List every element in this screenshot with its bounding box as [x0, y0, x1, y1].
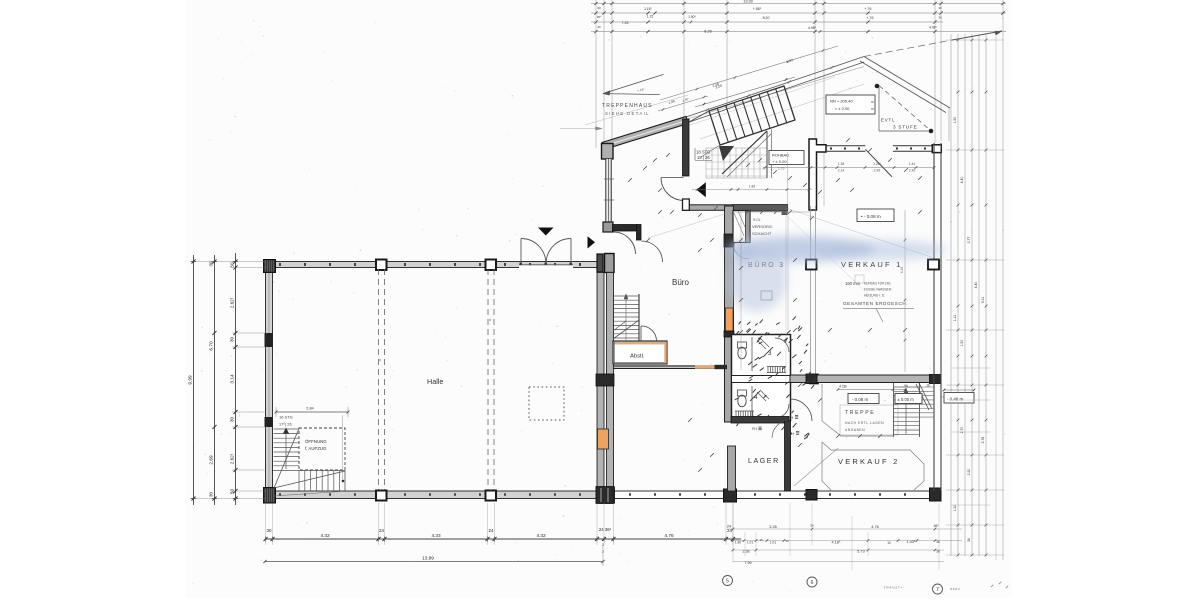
- svg-text:2.62¹: 2.62¹: [230, 297, 235, 308]
- svg-text:FH: FH: [752, 427, 757, 431]
- svg-text:36: 36: [936, 540, 940, 544]
- svg-text:• - 0.08 m: • - 0.08 m: [861, 214, 881, 219]
- svg-text:NACH ERTL.LAGEN: NACH ERTL.LAGEN: [845, 421, 884, 425]
- svg-text:2.78: 2.78: [981, 437, 985, 444]
- svg-text:1.90: 1.90: [735, 541, 741, 545]
- svg-text:+.76: +.76: [865, 7, 872, 11]
- svg-text:HEIZUNG I. D.: HEIZUNG I. D.: [864, 294, 885, 298]
- svg-text:30: 30: [597, 6, 601, 10]
- svg-text:8 6 8 2: 8 6 8 2: [950, 587, 960, 591]
- svg-text:16 STG: 16 STG: [279, 415, 293, 420]
- svg-text:8.26: 8.26: [704, 30, 711, 34]
- svg-text:18 | 26: 18 | 26: [697, 155, 710, 160]
- svg-text:2.69: 2.69: [209, 455, 215, 465]
- svg-text:2.14: 2.14: [838, 169, 845, 173]
- svg-text:30: 30: [230, 417, 235, 423]
- svg-text:1.15: 1.15: [647, 15, 653, 19]
- svg-text:36: 36: [967, 538, 971, 542]
- svg-text:3.26: 3.26: [769, 525, 776, 529]
- svg-text:1.01: 1.01: [770, 541, 776, 545]
- svg-text:4.40: 4.40: [960, 177, 964, 184]
- svg-text:FUSSB.+WASSER-: FUSSB.+WASSER-: [864, 288, 892, 292]
- svg-text:30: 30: [266, 528, 272, 533]
- svg-text:2.96: 2.96: [874, 169, 881, 173]
- svg-text:+.76: +.76: [867, 16, 874, 20]
- svg-text:ANGABEN: ANGABEN: [845, 428, 865, 432]
- svg-text:17⁵| 26: 17⁵| 26: [279, 422, 292, 427]
- svg-text:R.OL: R.OL: [753, 218, 761, 222]
- svg-text:4.98⁵: 4.98⁵: [808, 26, 817, 30]
- svg-text:3.77: 3.77: [967, 237, 971, 244]
- svg-text:2.30: 2.30: [909, 169, 916, 173]
- svg-text:30: 30: [597, 25, 601, 29]
- svg-text:18 STG: 18 STG: [696, 150, 710, 155]
- svg-text:m: m: [871, 107, 874, 111]
- svg-text:Abstl.: Abstl.: [630, 354, 645, 360]
- svg-text:96: 96: [904, 384, 908, 388]
- svg-text:1.43⁵: 1.43⁵: [907, 540, 916, 544]
- svg-text:50: 50: [230, 262, 235, 268]
- svg-text:10: 10: [785, 539, 789, 543]
- svg-text:Halle: Halle: [427, 377, 443, 386]
- svg-text:+ ± 0.00: + ± 0.00: [772, 159, 787, 164]
- svg-text:4.76: 4.76: [871, 525, 878, 529]
- svg-text:30⁵: 30⁵: [597, 15, 602, 19]
- svg-text:4.18⁵: 4.18⁵: [832, 541, 841, 545]
- svg-text:24: 24: [379, 528, 385, 533]
- svg-text:4.98⁵: 4.98⁵: [929, 26, 937, 30]
- svg-text:24: 24: [727, 525, 731, 529]
- svg-text:4.33: 4.33: [431, 533, 441, 538]
- svg-text:9.11: 9.11: [981, 297, 985, 303]
- svg-text:36⁵: 36⁵: [934, 524, 940, 528]
- svg-text:160 mm: 160 mm: [845, 281, 861, 286]
- svg-text:± 0.00 m: ± 0.00 m: [898, 397, 915, 402]
- svg-text:1.44: 1.44: [909, 162, 916, 166]
- svg-text:24: 24: [488, 528, 494, 533]
- svg-text:LAGER: LAGER: [748, 458, 780, 465]
- svg-text:1.26⁵: 1.26⁵: [873, 162, 881, 166]
- svg-text:2v: 2v: [810, 524, 814, 528]
- svg-text:VERKAUF 1: VERKAUF 1: [841, 260, 902, 269]
- svg-text:2.62¹: 2.62¹: [230, 453, 235, 464]
- svg-text:1.50: 1.50: [953, 117, 957, 124]
- svg-text:30: 30: [209, 261, 214, 267]
- svg-text:6: 6: [811, 580, 814, 586]
- svg-text:4.40: 4.40: [900, 267, 904, 274]
- svg-text:a: a: [378, 359, 382, 361]
- svg-text:Büro: Büro: [672, 278, 689, 287]
- svg-text:30: 30: [230, 337, 235, 343]
- svg-text:EVTL: EVTL: [881, 118, 895, 123]
- svg-text:T R Ä N Z T =: T R Ä N Z T =: [884, 586, 903, 590]
- svg-text:7.99: 7.99: [745, 561, 752, 565]
- svg-text:4.32: 4.32: [320, 533, 330, 538]
- svg-text:3 STUFE: 3 STUFE: [893, 125, 918, 130]
- svg-text:30: 30: [938, 6, 942, 10]
- svg-text:2.20: 2.20: [967, 469, 971, 476]
- svg-text:4.32: 4.32: [536, 533, 546, 538]
- svg-text:30: 30: [938, 16, 942, 20]
- svg-text:1.50: 1.50: [960, 340, 964, 347]
- svg-text:30: 30: [209, 492, 214, 498]
- svg-text:TREPPE: TREPPE: [845, 410, 875, 416]
- svg-text:50: 50: [230, 489, 235, 495]
- svg-text:24 36²: 24 36²: [599, 527, 612, 532]
- svg-text:ROHBAU: ROHBAU: [772, 153, 789, 158]
- svg-text:1.30: 1.30: [953, 505, 957, 512]
- svg-text:- 0.08 m: - 0.08 m: [852, 397, 868, 402]
- svg-text:1.11: 1.11: [953, 315, 957, 321]
- svg-text:7: 7: [936, 587, 939, 593]
- svg-text:- 0.48 m: - 0.48 m: [947, 397, 963, 402]
- svg-text:10: 10: [887, 541, 891, 545]
- svg-text:7.26: 7.26: [622, 21, 629, 25]
- svg-text:3.14: 3.14: [230, 374, 236, 384]
- svg-text:15: 15: [759, 538, 763, 542]
- svg-text:5: 5: [726, 578, 729, 584]
- svg-text:VERKAUF 2: VERKAUF 2: [838, 457, 899, 466]
- svg-text:TREPPENHAUS: TREPPENHAUS: [602, 103, 653, 109]
- svg-text:6.70: 6.70: [209, 341, 215, 351]
- svg-text:SCHACHT: SCHACHT: [752, 231, 772, 236]
- svg-text:4.76: 4.76: [664, 533, 674, 538]
- svg-text:a: a: [488, 319, 492, 321]
- svg-text:NN + 205.40: NN + 205.40: [830, 99, 853, 104]
- svg-text:ÖFFNUNG: ÖFFNUNG: [305, 439, 327, 444]
- svg-text:1.01: 1.01: [747, 541, 753, 545]
- svg-text:AUFBAU FÜR DIE: AUFBAU FÜR DIE: [864, 282, 891, 286]
- svg-text:36: 36: [936, 550, 940, 554]
- svg-text:2.84: 2.84: [306, 407, 313, 411]
- svg-text:4.40: 4.40: [974, 282, 978, 289]
- svg-text:+.88⁵: +.88⁵: [753, 7, 762, 11]
- svg-text:8.20: 8.20: [763, 16, 770, 20]
- svg-text:VERSORG.: VERSORG.: [752, 224, 773, 229]
- svg-text:m: m: [871, 100, 874, 104]
- svg-text:SIEHE DETAIL: SIEHE DETAIL: [605, 111, 650, 116]
- svg-text:9.99: 9.99: [188, 375, 194, 385]
- svg-text:13.99: 13.99: [743, 0, 753, 4]
- svg-text:2.38: 2.38: [743, 550, 750, 554]
- svg-text:1.90⁵: 1.90⁵: [688, 15, 696, 19]
- svg-text:5.73: 5.73: [857, 550, 864, 554]
- svg-text:≈ ± 0.00: ≈ ± 0.00: [835, 106, 850, 111]
- svg-text:2.70: 2.70: [960, 427, 964, 434]
- svg-text:1.88: 1.88: [749, 185, 755, 189]
- svg-text:1.72²: 1.72²: [778, 167, 785, 171]
- svg-text:f. AUFZUG: f. AUFZUG: [305, 446, 327, 451]
- svg-text:13.99: 13.99: [422, 556, 434, 561]
- svg-text:4.28²: 4.28²: [839, 385, 848, 389]
- svg-text:1.15⁵: 1.15⁵: [644, 7, 652, 11]
- svg-text:1.38: 1.38: [838, 162, 845, 166]
